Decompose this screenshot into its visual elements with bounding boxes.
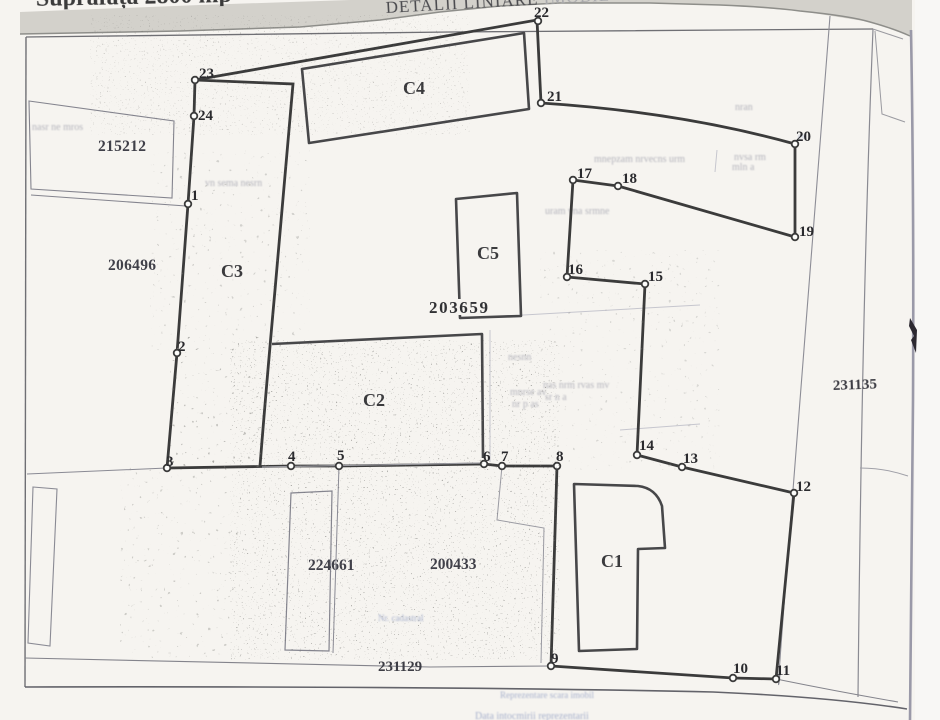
svg-text:mnepzam nrvecns urm: mnepzam nrvecns urm bbox=[594, 154, 685, 165]
svg-text:231129: 231129 bbox=[378, 659, 422, 675]
svg-text:C5: C5 bbox=[477, 243, 499, 263]
svg-text:Data intocmirii reprezentarii: Data intocmirii reprezentarii bbox=[475, 711, 589, 720]
svg-text:203659: 203659 bbox=[429, 298, 490, 317]
svg-text:17: 17 bbox=[577, 166, 593, 182]
svg-text:nasr ne mros: nasr ne mros bbox=[32, 122, 83, 133]
svg-text:12: 12 bbox=[796, 479, 811, 495]
svg-text:C1: C1 bbox=[601, 551, 623, 571]
svg-text:21: 21 bbox=[547, 89, 562, 105]
svg-text:215212: 215212 bbox=[98, 138, 146, 155]
svg-text:10: 10 bbox=[733, 661, 748, 677]
svg-text:18: 18 bbox=[622, 171, 637, 187]
svg-text:19: 19 bbox=[799, 224, 814, 240]
svg-text:22: 22 bbox=[534, 5, 549, 21]
svg-text:Reprezentare scara imobil: Reprezentare scara imobil bbox=[500, 690, 594, 700]
svg-text:nran: nran bbox=[735, 102, 753, 113]
svg-text:206496: 206496 bbox=[108, 257, 156, 274]
svg-text:mln a: mln a bbox=[732, 162, 755, 173]
svg-text:231135: 231135 bbox=[833, 376, 878, 394]
svg-text:20: 20 bbox=[796, 129, 811, 145]
svg-text:uram vna srmne: uram vna srmne bbox=[545, 206, 610, 217]
svg-text:11: 11 bbox=[776, 663, 790, 679]
